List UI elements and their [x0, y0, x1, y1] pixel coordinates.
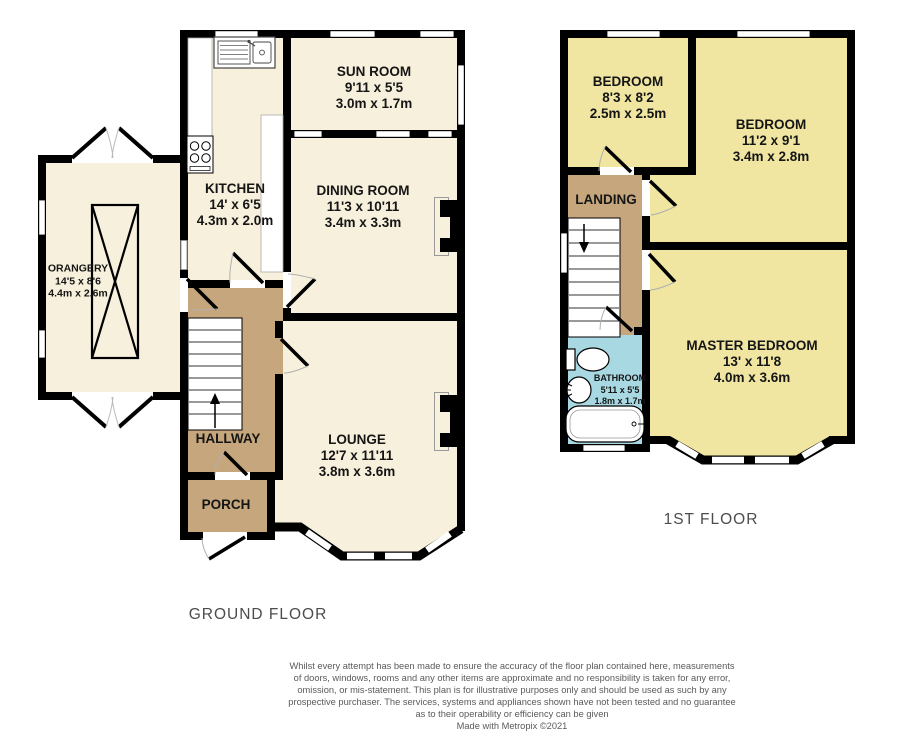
window [294, 131, 322, 137]
lounge-label: LOUNGE 12'7 x 11'11 3.8m x 3.6m [319, 432, 396, 480]
room-dims-metric: 3.4m x 2.8m [733, 149, 810, 165]
orangery-label: ORANGERY 14'5 x 8'6 4.4m x 2.6m [48, 262, 108, 300]
room-dims-metric: 3.4m x 3.3m [317, 215, 410, 231]
room-name: SUN ROOM [336, 64, 413, 80]
room-dims-imperial: 8'3 x 8'2 [590, 90, 667, 106]
window [330, 31, 375, 37]
window [607, 31, 660, 37]
bathroom-label: BATHROOM 5'11 x 5'5 1.8m x 1.7m [594, 373, 646, 408]
room-name: DINING ROOM [317, 183, 410, 199]
room-dims-imperial: 11'3 x 10'11 [317, 199, 410, 215]
stairs-icon [188, 318, 242, 430]
room-dims-imperial: 14'5 x 8'6 [48, 275, 108, 288]
window [376, 131, 410, 137]
window [39, 200, 45, 235]
disclaimer-text: Whilst every attempt has been made to en… [288, 661, 735, 732]
room-dims-imperial: 13' x 11'8 [686, 354, 817, 370]
room-name: BEDROOM [733, 117, 810, 133]
sun-room-label: SUN ROOM 9'11 x 5'5 3.0m x 1.7m [336, 64, 413, 112]
first-floor-title: 1ST FLOOR [664, 511, 759, 529]
window [420, 31, 454, 37]
room-name: MASTER BEDROOM [686, 338, 817, 354]
room-dims-imperial: 9'11 x 5'5 [336, 80, 413, 96]
stairs-icon [568, 218, 620, 337]
room-dims-metric: 2.5m x 2.5m [590, 106, 667, 122]
room-dims-metric: 4.0m x 3.6m [686, 370, 817, 386]
ground-floor-title: GROUND FLOOR [189, 606, 328, 624]
window [39, 330, 45, 358]
bedroom3-label: BEDROOM 11'2 x 9'1 3.4m x 2.8m [733, 117, 810, 165]
room-dims-imperial: 12'7 x 11'11 [319, 448, 396, 464]
room-name: ORANGERY [48, 262, 108, 275]
room-name: HALLWAY [196, 431, 261, 447]
window [583, 445, 625, 451]
dining-room-label: DINING ROOM 11'3 x 10'11 3.4m x 3.3m [317, 183, 410, 231]
window [181, 240, 187, 270]
disclaimer-line: prospective purchaser. The services, sys… [288, 697, 735, 709]
room-dims-metric: 4.4m x 2.6m [48, 287, 108, 300]
room-name: BATHROOM [594, 373, 646, 385]
room-name: BEDROOM [590, 74, 667, 90]
kitchen-label: KITCHEN 14' x 6'5 4.3m x 2.0m [197, 181, 274, 229]
disclaimer-line: Whilst every attempt has been made to en… [288, 661, 735, 673]
floorplan-page: SUN ROOM 9'11 x 5'5 3.0m x 1.7m KITCHEN … [0, 0, 900, 739]
room-dims-metric: 4.3m x 2.0m [197, 213, 274, 229]
room-name: LANDING [575, 192, 637, 208]
room-dims-metric: 3.0m x 1.7m [336, 96, 413, 112]
disclaimer-line: omission, or mis-statement. This plan is… [288, 685, 735, 697]
room-name: PORCH [202, 497, 251, 513]
room-name: KITCHEN [197, 181, 274, 197]
master-bedroom-label: MASTER BEDROOM 13' x 11'8 4.0m x 3.6m [686, 338, 817, 386]
credit-line: Made with Metropix ©2021 [288, 721, 735, 733]
bedroom2-label: BEDROOM 8'3 x 8'2 2.5m x 2.5m [590, 74, 667, 122]
porch-label: PORCH [202, 497, 251, 513]
room-dims-imperial: 5'11 x 5'5 [594, 384, 646, 396]
disclaimer-line: of doors, windows, rooms and any other i… [288, 673, 735, 685]
hallway-label: HALLWAY [196, 431, 261, 447]
room-dims-metric: 3.8m x 3.6m [319, 464, 396, 480]
disclaimer-line: as to their operability or efficiency ca… [288, 709, 735, 721]
room-dims-imperial: 11'2 x 9'1 [733, 133, 810, 149]
landing-label: LANDING [575, 192, 637, 208]
window [428, 131, 452, 137]
room-name: LOUNGE [319, 432, 396, 448]
sink-icon [214, 37, 275, 68]
window [561, 233, 567, 273]
hob-icon [187, 136, 213, 173]
window [737, 31, 810, 37]
window [215, 31, 258, 37]
room-dims-imperial: 14' x 6'5 [197, 197, 274, 213]
toilet-icon [566, 348, 609, 371]
bathtub-icon [566, 406, 644, 442]
window [458, 65, 464, 125]
room-dims-metric: 1.8m x 1.7m [594, 396, 646, 408]
